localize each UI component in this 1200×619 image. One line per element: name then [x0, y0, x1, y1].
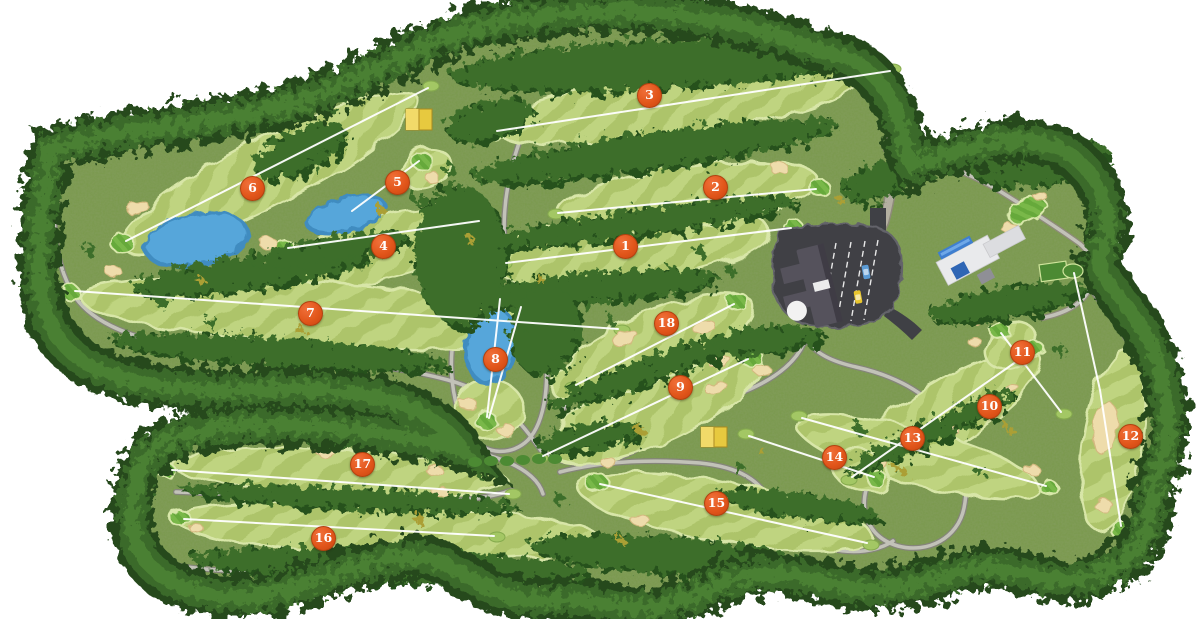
hole-7-badge[interactable]: 7: [298, 301, 323, 326]
hole-6-number: 6: [248, 182, 257, 195]
hole-16-number: 16: [315, 532, 332, 545]
hole-13-number: 13: [904, 432, 921, 445]
hole-5-badge[interactable]: 5: [385, 170, 410, 195]
hole-10-number: 10: [981, 400, 998, 413]
hole-9-badge[interactable]: 9: [668, 375, 693, 400]
hole-14-number: 14: [826, 451, 843, 464]
hole-5-number: 5: [393, 176, 402, 189]
hole-13-badge[interactable]: 13: [900, 426, 925, 451]
hole-2-number: 2: [711, 181, 720, 194]
hole-11-number: 11: [1014, 346, 1031, 359]
hole-8-number: 8: [491, 353, 500, 366]
hole-7-number: 7: [306, 307, 315, 320]
hole-6-badge[interactable]: 6: [240, 176, 265, 201]
hole-15-badge[interactable]: 15: [704, 491, 729, 516]
golf-course-map: 1 2 3 4 5 6 7 8 9 10 11 12 13 14 15 16 1…: [0, 0, 1200, 619]
hole-9-number: 9: [676, 381, 685, 394]
hole-17-number: 17: [354, 458, 371, 471]
rest-house-north: [406, 109, 432, 130]
hole-17-badge[interactable]: 17: [350, 452, 375, 477]
hole-4-number: 4: [379, 240, 388, 253]
rest-house-south: [701, 427, 727, 447]
hole-12-badge[interactable]: 12: [1118, 424, 1143, 449]
hole-18-number: 18: [658, 317, 675, 330]
course-map-illustration: [0, 0, 1200, 619]
hole-14-badge[interactable]: 14: [822, 445, 847, 470]
hole-1-number: 1: [621, 240, 630, 253]
hole-10-badge[interactable]: 10: [977, 394, 1002, 419]
hole-2-badge[interactable]: 2: [703, 175, 728, 200]
hole-12-number: 12: [1122, 430, 1139, 443]
hole-3-number: 3: [645, 89, 654, 102]
hole-3-badge[interactable]: 3: [637, 83, 662, 108]
hole-16-badge[interactable]: 16: [311, 526, 336, 551]
hole-1-badge[interactable]: 1: [613, 234, 638, 259]
hole-15-number: 15: [708, 497, 725, 510]
hole-18-badge[interactable]: 18: [654, 311, 679, 336]
hole-8-badge[interactable]: 8: [483, 347, 508, 372]
hole-11-badge[interactable]: 11: [1010, 340, 1035, 365]
hole-4-badge[interactable]: 4: [371, 234, 396, 259]
